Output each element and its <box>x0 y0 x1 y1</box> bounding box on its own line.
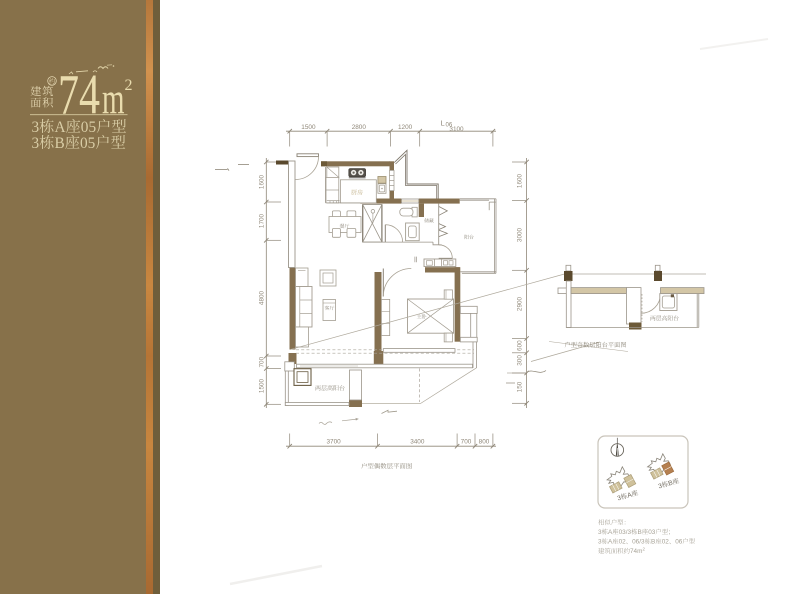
svg-text:2800: 2800 <box>352 124 367 131</box>
svg-text:2: 2 <box>643 546 646 551</box>
svg-text:06: 06 <box>675 539 683 546</box>
svg-text:B: B <box>638 529 642 536</box>
svg-text:150: 150 <box>517 381 524 392</box>
svg-text:74m: 74m <box>630 548 642 555</box>
svg-text:1200: 1200 <box>398 124 413 131</box>
svg-text:3: 3 <box>32 135 40 152</box>
svg-text:06: 06 <box>446 123 453 129</box>
svg-text:02: 02 <box>619 539 627 546</box>
svg-text:1500: 1500 <box>259 378 266 393</box>
svg-text:700: 700 <box>461 439 472 446</box>
svg-text:B: B <box>55 135 65 152</box>
svg-text:1600: 1600 <box>517 173 524 188</box>
svg-text:1600: 1600 <box>259 174 266 189</box>
svg-text:06/3: 06/3 <box>632 539 645 546</box>
svg-text:A: A <box>608 539 613 546</box>
svg-text:3: 3 <box>598 539 602 546</box>
svg-text:03/3: 03/3 <box>619 529 632 536</box>
svg-text:4800: 4800 <box>259 290 266 305</box>
svg-text:300: 300 <box>517 355 524 366</box>
svg-text:05: 05 <box>80 135 96 152</box>
svg-text:03: 03 <box>648 529 656 536</box>
svg-text:3: 3 <box>598 529 602 536</box>
svg-text:2: 2 <box>125 77 133 94</box>
svg-text:3400: 3400 <box>410 439 425 446</box>
svg-text:2900: 2900 <box>517 296 524 311</box>
svg-text:3000: 3000 <box>517 227 524 242</box>
svg-text:02: 02 <box>662 539 670 546</box>
svg-text:3: 3 <box>32 119 40 136</box>
svg-text:A: A <box>608 529 613 536</box>
svg-text:05: 05 <box>81 119 97 136</box>
svg-text:600: 600 <box>517 340 524 351</box>
svg-text:1700: 1700 <box>259 213 266 228</box>
svg-text:A: A <box>55 119 66 136</box>
svg-text:1500: 1500 <box>301 124 316 131</box>
svg-text:800: 800 <box>479 439 490 446</box>
svg-text:700: 700 <box>259 356 266 367</box>
svg-text:B: B <box>651 539 655 546</box>
svg-text:L: L <box>441 119 445 128</box>
svg-text:74: 74 <box>58 64 100 127</box>
svg-text:m: m <box>102 75 125 124</box>
svg-text:3700: 3700 <box>326 439 341 446</box>
